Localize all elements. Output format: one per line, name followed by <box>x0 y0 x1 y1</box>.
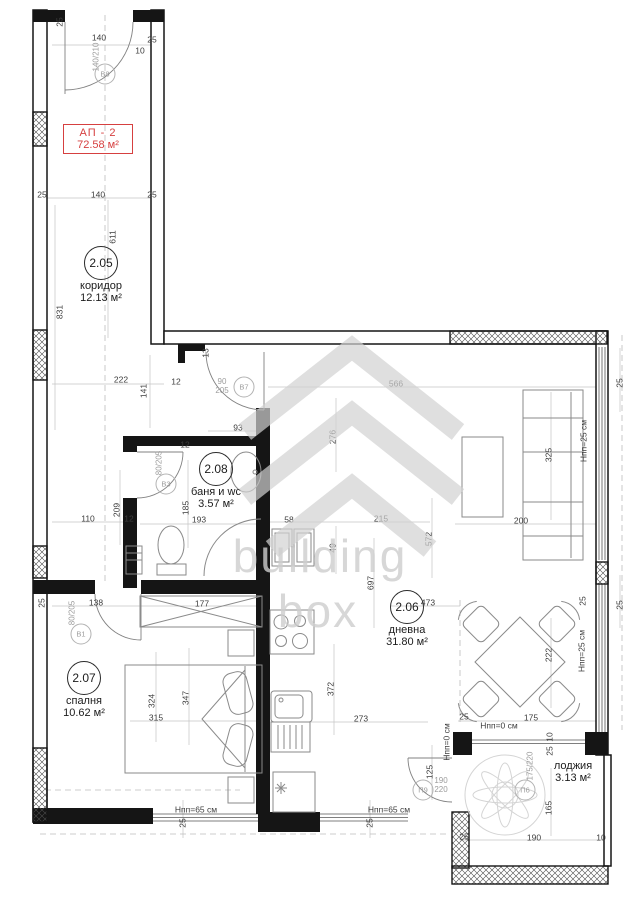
apartment-area: 72.58 м² <box>64 139 132 151</box>
dim-label: 25 <box>546 746 555 755</box>
dim-label: 697 <box>367 576 376 590</box>
dim-label: 140 <box>92 34 106 43</box>
door-tag-size: 80/205 <box>156 451 165 475</box>
dim-label: 10 <box>596 834 605 843</box>
dim-label: 222 <box>114 376 128 385</box>
dim-label: 185 <box>182 501 191 515</box>
dim-label: 12 <box>171 378 180 387</box>
door-tag-circle: В7 <box>234 377 255 398</box>
dim-label: Нпп=25 см <box>578 630 587 672</box>
room-area: 3.57 м² <box>198 498 234 510</box>
room-name: дневна <box>389 624 426 636</box>
room-name: баня и wc <box>191 486 241 498</box>
dim-label: Нпп=65 см <box>368 806 410 815</box>
room-area: 12.13 м² <box>80 292 122 304</box>
dim-label: Нпп=65 см <box>175 806 217 815</box>
door-tag-circle: В1 <box>71 624 92 645</box>
dim-label: Нпп=25 см <box>580 420 589 462</box>
dim-label: 138 <box>89 599 103 608</box>
dim-label: 25 <box>37 191 46 200</box>
dim-label: 140 <box>91 191 105 200</box>
dim-label: 315 <box>149 714 163 723</box>
dim-label: 25 <box>147 191 156 200</box>
dim-label: 347 <box>182 691 191 705</box>
dim-label: 141 <box>140 384 149 398</box>
apartment-tag: АП - 2 72.58 м² <box>63 124 133 154</box>
dim-label: 175 <box>524 714 538 723</box>
dim-label: 177 <box>195 600 209 609</box>
dim-label: 273 <box>354 715 368 724</box>
dim-label: 25 <box>56 17 65 26</box>
dim-label: 12 <box>124 515 133 524</box>
dim-label: 566 <box>389 380 403 389</box>
dim-label: 372 <box>327 682 336 696</box>
door-tag-size: 175/220 <box>527 752 536 781</box>
dim-label: 93 <box>233 424 242 433</box>
door-tag-circle: В3 <box>156 474 177 495</box>
room-area: 31.80 м² <box>386 636 428 648</box>
dim-label: 25 <box>38 598 47 607</box>
dim-label: 25 <box>579 596 588 605</box>
dim-label: 125 <box>426 765 435 779</box>
dim-label: 611 <box>109 230 118 244</box>
floor-plan: АП - 2 72.58 м² 251402510251402561183122… <box>0 0 640 900</box>
dim-label: 193 <box>192 516 206 525</box>
door-tag-size: 90 205 <box>215 378 228 396</box>
dim-label: 25 <box>459 833 468 842</box>
room-number-circle: 2.06 <box>390 590 424 624</box>
dim-label: 209 <box>113 503 122 517</box>
dim-label: 12 <box>180 441 189 450</box>
room-area: 3.13 м² <box>555 772 591 784</box>
room-name: спалня <box>66 695 102 707</box>
dim-label: 58 <box>284 516 293 525</box>
room-number-circle: 2.08 <box>199 452 233 486</box>
dim-label: 572 <box>425 532 434 546</box>
door-tag-size: 140/210 <box>93 43 102 72</box>
room-name: коридор <box>80 280 122 292</box>
dim-label: 325 <box>545 448 554 462</box>
door-tag-size: 190 220 <box>434 777 447 795</box>
dim-label: 200 <box>514 517 528 526</box>
dim-label: 25 <box>616 378 625 387</box>
apartment-id: АП - 2 <box>64 127 132 139</box>
door-tag-circle: П9 <box>413 780 434 801</box>
dim-label: 25 <box>179 818 188 827</box>
dim-label: Нпп=0 см <box>443 723 452 761</box>
room-number-circle: 2.07 <box>67 661 101 695</box>
dim-label: 165 <box>545 801 554 815</box>
dim-label: 110 <box>81 515 95 524</box>
door-tag-size: 80/205 <box>69 601 78 625</box>
room-number-circle: 2.05 <box>84 246 118 280</box>
door-tag-circle: П6 <box>515 780 536 801</box>
dim-label: Нпп=0 см <box>480 722 518 731</box>
dim-label: 324 <box>148 694 157 708</box>
dim-label: 10 <box>135 47 144 56</box>
dim-label: 222 <box>545 648 554 662</box>
room-name: лоджия <box>554 760 592 772</box>
dim-label: 25 <box>616 600 625 609</box>
dim-label: 215 <box>374 515 388 524</box>
dim-label: 25 <box>366 818 375 827</box>
dim-label: 49 <box>329 543 338 552</box>
dim-label: 25 <box>147 36 156 45</box>
dim-label: 13 <box>202 348 211 357</box>
dim-label: 25 <box>459 713 468 722</box>
labels-layer: АП - 2 72.58 м² 251402510251402561183122… <box>0 0 640 900</box>
room-area: 10.62 м² <box>63 707 105 719</box>
dim-label: 831 <box>56 305 65 319</box>
dim-label: 10 <box>546 732 555 741</box>
dim-label: 276 <box>329 430 338 444</box>
dim-label: 190 <box>527 834 541 843</box>
